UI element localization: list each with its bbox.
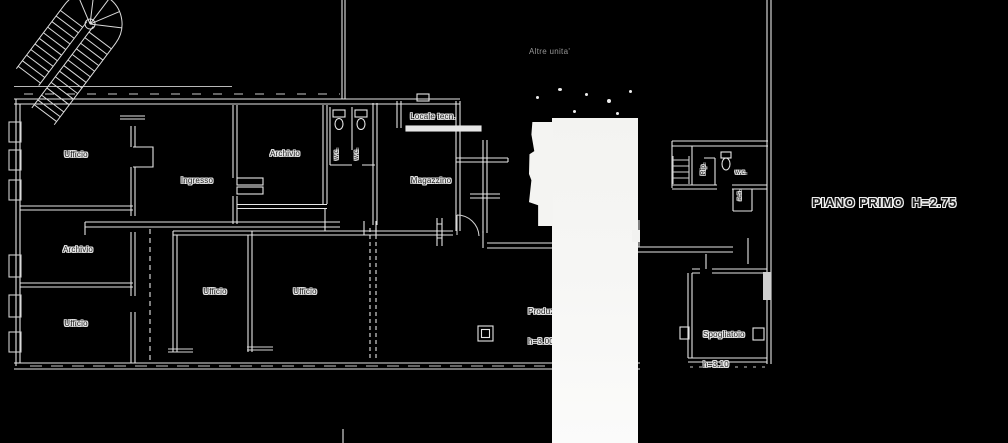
corridor-wall-dashed (370, 228, 376, 361)
wc-right-tank (721, 152, 731, 158)
toilet-tank-2 (355, 110, 367, 117)
room-label-ufficio-mid-left: Ufficio (203, 287, 226, 297)
spogliatoio-height: h=3.10 (703, 360, 745, 370)
room-label-ripostiglio: Rip. (699, 163, 709, 175)
whiteout-speck (573, 110, 576, 113)
left-wall-windows (9, 122, 21, 352)
whiteout-speck (607, 99, 611, 103)
radiator (437, 218, 442, 246)
room-label-wc-right: w.c. (735, 168, 747, 178)
room-label-locale-tecnico: Locale tecn. (410, 112, 456, 122)
right-wall-step (753, 328, 764, 340)
room-label-archivio-left: Archivio (63, 245, 93, 255)
double-door-leaf-1 (237, 178, 263, 185)
right-radiator (673, 156, 689, 184)
locale-tecnico-counter (406, 126, 481, 131)
whiteout-speck (558, 88, 562, 91)
spogliatoio-name: Spogliatoio (703, 330, 745, 340)
ingresso-partition (233, 105, 237, 224)
magazzino-walls (456, 101, 508, 233)
whiteout-speck (629, 90, 632, 93)
locale-tecnico-walls (397, 101, 401, 128)
mid-wall-bands (85, 221, 453, 235)
mid-offices-doors (168, 347, 273, 352)
toilet-tank-1 (333, 110, 345, 117)
staircase (3, 0, 135, 125)
room-label-spogliatoio: Spogliatoio h=3.10 (703, 310, 745, 390)
room-label-wc-stall-left: w.c. (332, 148, 342, 160)
column-inner (482, 330, 490, 338)
wc-right-bowl (722, 158, 730, 170)
whiteout-band (552, 118, 638, 443)
whiteout-chip (632, 230, 640, 242)
toilet-bowl-2 (357, 119, 365, 130)
column-outer (478, 326, 493, 341)
floor-title: PIANO PRIMO H=2.75 (812, 198, 957, 208)
toilet-bowl-1 (335, 119, 343, 130)
room-label-ufficio-mid-right: Ufficio (293, 287, 316, 297)
room-label-as: a.s. (735, 189, 745, 200)
room-label-ufficio-bottom-left: Ufficio (64, 319, 87, 329)
produzione-top-wall (483, 231, 555, 248)
corridor-wall (373, 103, 377, 225)
room-label-wc-stall-right: w.c. (352, 148, 362, 160)
room-label-archivio-top: Archivio (270, 149, 300, 159)
exterior-walls (14, 0, 771, 369)
right-wall-window (763, 272, 771, 300)
external-units-note: Altre unita' (529, 47, 570, 57)
room-label-ingresso: Ingresso (181, 176, 213, 186)
whiteout-speck (536, 96, 539, 99)
whiteout-speck (616, 112, 619, 115)
top-wall-door-bump (417, 94, 429, 101)
room-label-ufficio-top-left: Ufficio (64, 150, 87, 160)
floor-plan-drawing (0, 0, 1008, 443)
whiteout-speck (585, 93, 588, 96)
double-door-leaf-2 (237, 187, 263, 194)
room-label-magazzino: Magazzino (411, 176, 452, 186)
archivio-top-walls (237, 105, 327, 231)
floor-plan-canvas: Ufficio Ingresso Archivio w.c. w.c. Loca… (0, 0, 1008, 443)
